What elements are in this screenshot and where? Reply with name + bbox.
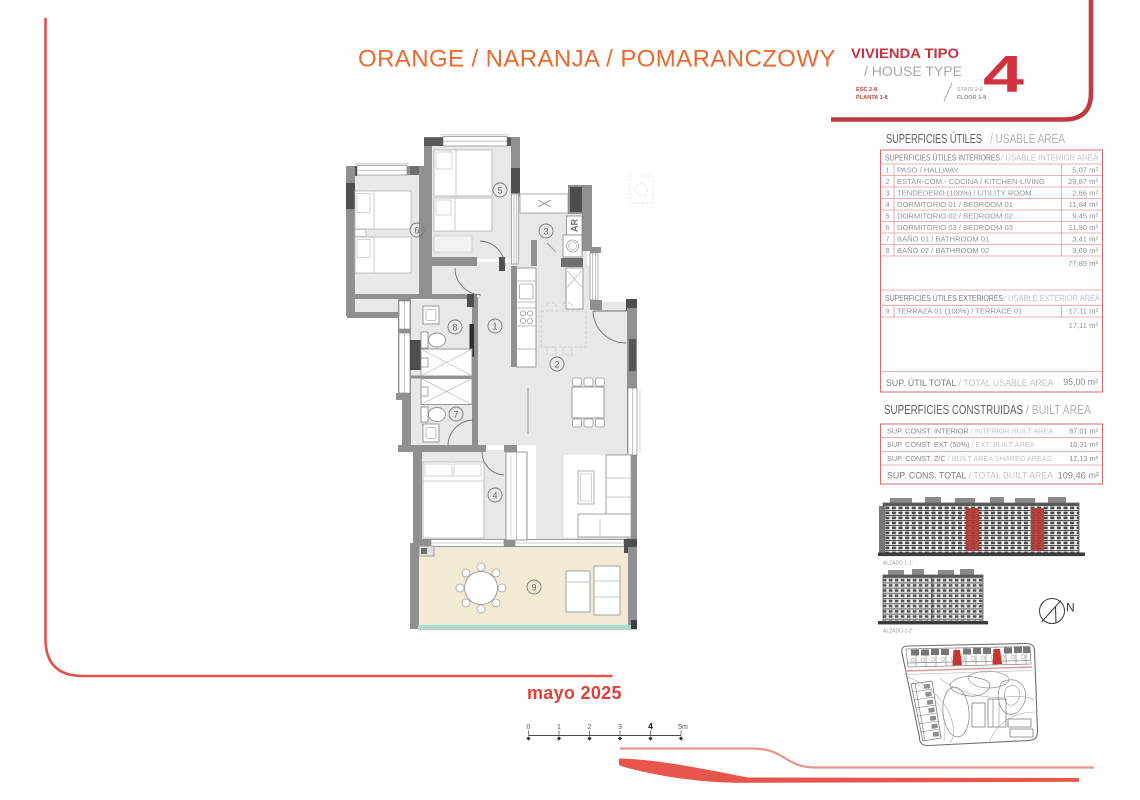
svg-text:3: 3: [618, 724, 622, 731]
svg-text:77,89 m²: 77,89 m²: [1068, 259, 1098, 268]
svg-text:6: 6: [885, 223, 889, 232]
svg-text:3: 3: [543, 226, 548, 236]
svg-text:N: N: [1066, 601, 1075, 615]
svg-text:SUPERFICIES ÚTILES INTERIORES: SUPERFICIES ÚTILES INTERIORES: [885, 153, 1000, 163]
svg-text:5: 5: [497, 185, 502, 195]
svg-text:ALZADO 2-2': ALZADO 2-2': [883, 629, 913, 635]
svg-text:5: 5: [885, 212, 889, 221]
svg-text:2: 2: [554, 359, 559, 369]
svg-text:6: 6: [414, 225, 419, 235]
svg-text:TENDEDERO (100%) / UTILITY ROO: TENDEDERO (100%) / UTILITY ROOM: [897, 189, 1031, 198]
svg-text:17,11 m²: 17,11 m²: [1069, 307, 1099, 316]
svg-text:8: 8: [885, 246, 889, 255]
svg-text:AR: AR: [570, 219, 580, 232]
svg-text:7: 7: [885, 235, 889, 244]
svg-text:1: 1: [557, 724, 561, 731]
svg-text:2,66 m²: 2,66 m²: [1072, 189, 1098, 198]
svg-text:ESC 2-8: ESC 2-8: [856, 87, 877, 93]
svg-text:BAÑO 02 / BATHROOM 02: BAÑO 02 / BATHROOM 02: [897, 246, 989, 255]
svg-text:8: 8: [452, 322, 457, 332]
svg-text:ESTAR-COM.- COCINA / KITCHEN-L: ESTAR-COM.- COCINA / KITCHEN-LIVING: [897, 177, 1045, 186]
svg-text:12,13 m²: 12,13 m²: [1069, 454, 1098, 463]
svg-text:SUP. CONST. EXT (50%) / EXT. B: SUP. CONST. EXT (50%) / EXT. BUILT AREA: [887, 440, 1035, 449]
svg-text:/ USABLE INTERIOR AREA: / USABLE INTERIOR AREA: [1001, 153, 1098, 163]
svg-text:/ USABLE AREA: / USABLE AREA: [990, 131, 1065, 146]
svg-text:87,01 m²: 87,01 m²: [1069, 427, 1098, 436]
svg-text:2: 2: [885, 177, 889, 186]
svg-text:TERRAZA 01 (100%) / TERRACE 01: TERRAZA 01 (100%) / TERRACE 01: [897, 307, 1022, 316]
svg-text:17,11 m²: 17,11 m²: [1069, 321, 1099, 330]
svg-text:DORMITORIO 01 / BEDROOM 01: DORMITORIO 01 / BEDROOM 01: [897, 200, 1013, 209]
svg-text:29,87 m²: 29,87 m²: [1068, 177, 1098, 186]
svg-text:BAÑO 01 / BATHROOM 01: BAÑO 01 / BATHROOM 01: [897, 235, 989, 244]
svg-text:DORMITORIO 02 / BEDROOM 02: DORMITORIO 02 / BEDROOM 02: [897, 212, 1013, 221]
svg-text:109,46 m²: 109,46 m²: [1058, 471, 1099, 481]
svg-text:SUP. CONST. INTERIOR / INTERIO: SUP. CONST. INTERIOR / INTERIOR BUILT AR…: [887, 427, 1053, 436]
svg-text:SUPERFICIES ÚTILES: SUPERFICIES ÚTILES: [886, 131, 982, 146]
svg-text:1: 1: [492, 321, 497, 331]
svg-text:VIVIENDA TIPO: VIVIENDA TIPO: [851, 46, 959, 61]
svg-text:2: 2: [588, 724, 592, 731]
svg-text:SUP. CONS. TOTAL / TOTAL BUILT: SUP. CONS. TOTAL / TOTAL BUILT AREA: [887, 471, 1053, 481]
svg-text:mayo 2025: mayo 2025: [527, 683, 622, 703]
svg-text:9: 9: [531, 582, 536, 592]
svg-text:SUP. CONST. Z/C / BUILT AREA S: SUP. CONST. Z/C / BUILT AREA SHARED AREA…: [887, 454, 1052, 463]
svg-text:4: 4: [885, 200, 889, 209]
svg-text:/ BUILT AREA: / BUILT AREA: [1026, 402, 1091, 417]
svg-text:9: 9: [885, 307, 889, 316]
svg-text:95,00 m²: 95,00 m²: [1063, 377, 1098, 387]
svg-text:4: 4: [648, 721, 653, 731]
svg-text:7: 7: [453, 409, 458, 419]
svg-text:1: 1: [885, 166, 889, 175]
svg-text:/ USABLE EXTERIOR AREA: / USABLE EXTERIOR AREA: [1004, 293, 1100, 303]
svg-text:3,41 m²: 3,41 m²: [1072, 235, 1098, 244]
svg-text:4: 4: [983, 46, 1024, 104]
svg-text:PASO / HALLWAY: PASO / HALLWAY: [897, 166, 959, 175]
svg-text:SUP. ÚTIL TOTAL / TOTAL USABLE: SUP. ÚTIL TOTAL / TOTAL USABLE AREA: [886, 378, 1054, 388]
svg-text:10,31 m²: 10,31 m²: [1069, 440, 1098, 449]
svg-text:SUPERFICIES CONSTRUIDAS: SUPERFICIES CONSTRUIDAS: [884, 402, 1023, 417]
svg-text:5,07 m²: 5,07 m²: [1072, 166, 1098, 175]
svg-text:PLANTA 1-8: PLANTA 1-8: [856, 95, 888, 101]
svg-text:ORANGE / NARANJA / POMARANCZOW: ORANGE / NARANJA / POMARANCZOWY: [358, 46, 836, 73]
svg-text:SUPERFICIES ÚTILES EXTERIORES: SUPERFICIES ÚTILES EXTERIORES: [885, 293, 1003, 303]
svg-text:3,69 m²: 3,69 m²: [1072, 246, 1098, 255]
svg-text:FLOOR 1-8: FLOOR 1-8: [957, 95, 986, 101]
svg-text:3: 3: [885, 189, 889, 198]
svg-text:/ HOUSE TYPE: / HOUSE TYPE: [864, 64, 962, 79]
svg-text:STAIR 2-8: STAIR 2-8: [957, 87, 983, 93]
svg-text:DORMITORIO 03 / BEDROOM 03: DORMITORIO 03 / BEDROOM 03: [897, 223, 1013, 232]
svg-text:9,45 m²: 9,45 m²: [1072, 212, 1098, 221]
svg-text:ALZADO 1-1': ALZADO 1-1': [883, 561, 913, 567]
svg-text:11,84 m²: 11,84 m²: [1069, 200, 1099, 209]
svg-text:11,90 m²: 11,90 m²: [1069, 223, 1099, 232]
svg-text:4: 4: [492, 490, 497, 500]
svg-text:5m: 5m: [678, 724, 688, 731]
svg-text:0: 0: [527, 724, 531, 731]
